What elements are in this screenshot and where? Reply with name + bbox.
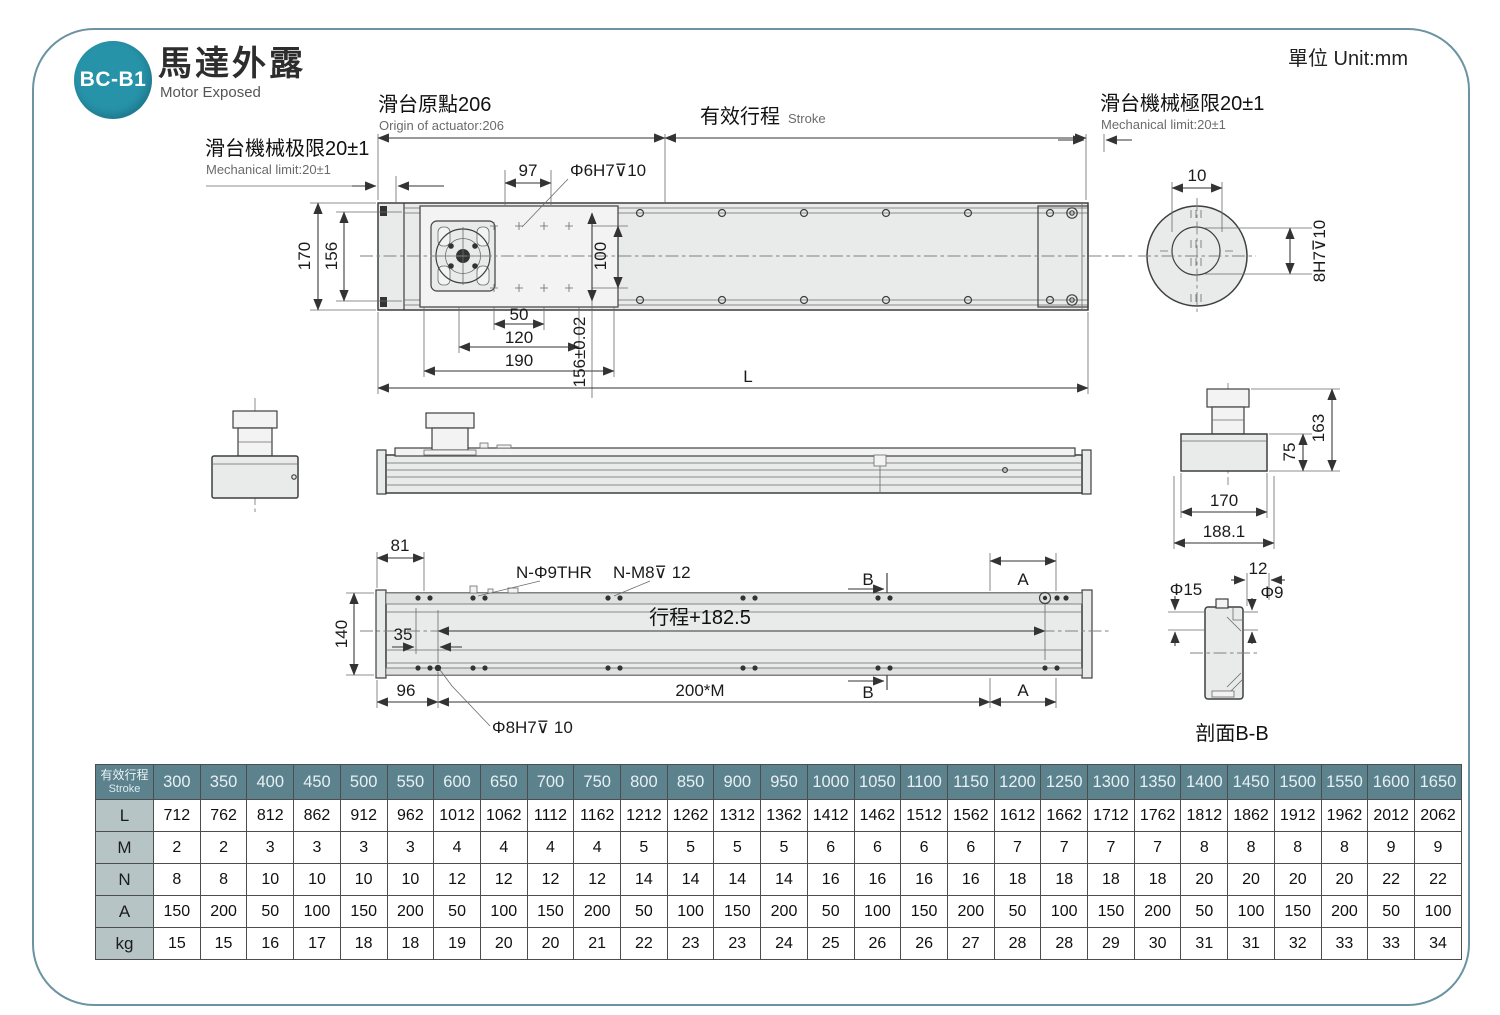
spec-cell: 1562 [947, 800, 994, 832]
spec-cell: 150 [714, 896, 761, 928]
spec-row-M: M2233334444555566667777888899 [96, 832, 1462, 864]
spec-cell: 18 [387, 928, 434, 960]
spec-cell: 762 [200, 800, 247, 832]
spec-cell: 6 [901, 832, 948, 864]
spec-cell: 1162 [574, 800, 621, 832]
spec-cell: 20 [1321, 864, 1368, 896]
spec-cell: 22 [1414, 864, 1461, 896]
spec-cell: 100 [854, 896, 901, 928]
spec-cell: 14 [761, 864, 808, 896]
spec-cell: 15 [154, 928, 201, 960]
spec-cell: 28 [1041, 928, 1088, 960]
spec-cell: 18 [1134, 864, 1181, 896]
stroke-col-header: 1350 [1134, 765, 1181, 800]
spec-cell: 22 [1368, 864, 1415, 896]
spec-cell: 8 [200, 864, 247, 896]
spec-cell: 33 [1368, 928, 1415, 960]
spec-cell: 32 [1274, 928, 1321, 960]
spec-cell: 1262 [667, 800, 714, 832]
stroke-col-header: 1050 [854, 765, 901, 800]
spec-row-kg: kg15151617181819202021222323242526262728… [96, 928, 1462, 960]
spec-cell: 8 [1274, 832, 1321, 864]
spec-cell: 1812 [1181, 800, 1228, 832]
spec-cell: 50 [1181, 896, 1228, 928]
spec-cell: 1412 [807, 800, 854, 832]
spec-cell: 200 [947, 896, 994, 928]
spec-cell: 4 [574, 832, 621, 864]
spec-cell: 1962 [1321, 800, 1368, 832]
spec-cell: 1362 [761, 800, 808, 832]
stroke-col-header: 350 [200, 765, 247, 800]
stroke-col-header: 1150 [947, 765, 994, 800]
spec-cell: 6 [854, 832, 901, 864]
spec-cell: 10 [294, 864, 341, 896]
spec-cell: 1662 [1041, 800, 1088, 832]
spec-cell: 100 [1041, 896, 1088, 928]
spec-cell: 4 [527, 832, 574, 864]
spec-cell: 8 [1181, 832, 1228, 864]
spec-cell: 200 [387, 896, 434, 928]
spec-cell: 25 [807, 928, 854, 960]
spec-cell: 812 [247, 800, 294, 832]
spec-cell: 100 [667, 896, 714, 928]
spec-cell: 1612 [994, 800, 1041, 832]
spec-cell: 7 [1088, 832, 1135, 864]
stroke-col-header: 1450 [1228, 765, 1275, 800]
stroke-col-header: 1200 [994, 765, 1041, 800]
spec-cell: 1512 [901, 800, 948, 832]
spec-cell: 31 [1181, 928, 1228, 960]
stroke-col-header: 1100 [901, 765, 948, 800]
spec-cell: 28 [994, 928, 1041, 960]
spec-cell: 3 [387, 832, 434, 864]
spec-cell: 18 [340, 928, 387, 960]
stroke-col-header: 1400 [1181, 765, 1228, 800]
stroke-header-en: Stroke [96, 783, 153, 795]
spec-cell: 20 [527, 928, 574, 960]
spec-cell: 20 [1181, 864, 1228, 896]
spec-cell: 1112 [527, 800, 574, 832]
datasheet-page: { "page": { "badge": "BC-B1", "title_zh"… [0, 0, 1500, 1015]
spec-cell: 5 [667, 832, 714, 864]
spec-cell: 1862 [1228, 800, 1275, 832]
spec-cell: 34 [1414, 928, 1461, 960]
row-label-kg: kg [96, 928, 154, 960]
spec-cell: 200 [574, 896, 621, 928]
stroke-col-header: 500 [340, 765, 387, 800]
stroke-col-header: 1650 [1414, 765, 1461, 800]
spec-cell: 2012 [1368, 800, 1415, 832]
spec-cell: 26 [854, 928, 901, 960]
spec-cell: 1912 [1274, 800, 1321, 832]
spec-cell: 50 [994, 896, 1041, 928]
spec-cell: 4 [434, 832, 481, 864]
spec-cell: 18 [1088, 864, 1135, 896]
spec-cell: 100 [294, 896, 341, 928]
spec-cell: 19 [434, 928, 481, 960]
spec-cell: 1012 [434, 800, 481, 832]
spec-row-N: N881010101012121212141414141616161618181… [96, 864, 1462, 896]
spec-cell: 29 [1088, 928, 1135, 960]
spec-cell: 10 [387, 864, 434, 896]
spec-cell: 7 [1134, 832, 1181, 864]
spec-cell: 7 [1041, 832, 1088, 864]
spec-cell: 200 [1134, 896, 1181, 928]
spec-cell: 150 [154, 896, 201, 928]
spec-cell: 16 [807, 864, 854, 896]
spec-cell: 2 [154, 832, 201, 864]
spec-cell: 16 [901, 864, 948, 896]
spec-cell: 5 [621, 832, 668, 864]
stroke-col-header: 700 [527, 765, 574, 800]
spec-cell: 27 [947, 928, 994, 960]
stroke-col-header: 1600 [1368, 765, 1415, 800]
spec-cell: 200 [761, 896, 808, 928]
stroke-header-cell: 有效行程Stroke [96, 765, 154, 800]
row-label-M: M [96, 832, 154, 864]
spec-cell: 50 [434, 896, 481, 928]
spec-cell: 4 [480, 832, 527, 864]
spec-cell: 50 [247, 896, 294, 928]
spec-cell: 9 [1414, 832, 1461, 864]
row-label-N: N [96, 864, 154, 896]
spec-cell: 18 [994, 864, 1041, 896]
spec-cell: 21 [574, 928, 621, 960]
stroke-col-header: 600 [434, 765, 481, 800]
spec-cell: 2062 [1414, 800, 1461, 832]
spec-cell: 16 [247, 928, 294, 960]
spec-cell: 23 [667, 928, 714, 960]
spec-cell: 24 [761, 928, 808, 960]
stroke-col-header: 900 [714, 765, 761, 800]
spec-row-L: L712762812862912962101210621112116212121… [96, 800, 1462, 832]
spec-row-A: A150200501001502005010015020050100150200… [96, 896, 1462, 928]
stroke-col-header: 750 [574, 765, 621, 800]
spec-cell: 12 [574, 864, 621, 896]
stroke-col-header: 800 [621, 765, 668, 800]
stroke-col-header: 850 [667, 765, 714, 800]
stroke-col-header: 300 [154, 765, 201, 800]
spec-cell: 1462 [854, 800, 901, 832]
stroke-col-header: 400 [247, 765, 294, 800]
spec-cell: 100 [480, 896, 527, 928]
spec-cell: 8 [1228, 832, 1275, 864]
spec-cell: 16 [854, 864, 901, 896]
spec-cell: 20 [480, 928, 527, 960]
spec-cell: 150 [1088, 896, 1135, 928]
spec-cell: 12 [527, 864, 574, 896]
stroke-header-zh: 有效行程 [96, 769, 153, 782]
spec-cell: 5 [714, 832, 761, 864]
spec-cell: 15 [200, 928, 247, 960]
spec-cell: 712 [154, 800, 201, 832]
spec-cell: 30 [1134, 928, 1181, 960]
spec-cell: 6 [807, 832, 854, 864]
spec-cell: 5 [761, 832, 808, 864]
spec-cell: 17 [294, 928, 341, 960]
spec-cell: 50 [621, 896, 668, 928]
spec-cell: 20 [1274, 864, 1321, 896]
page-subtitle: Motor Exposed [160, 84, 261, 101]
stroke-col-header: 1550 [1321, 765, 1368, 800]
spec-cell: 14 [621, 864, 668, 896]
spec-cell: 23 [714, 928, 761, 960]
spec-cell: 1712 [1088, 800, 1135, 832]
spec-cell: 962 [387, 800, 434, 832]
spec-cell: 150 [1274, 896, 1321, 928]
spec-cell: 8 [1321, 832, 1368, 864]
spec-cell: 10 [340, 864, 387, 896]
spec-cell: 50 [807, 896, 854, 928]
stroke-col-header: 650 [480, 765, 527, 800]
spec-cell: 31 [1228, 928, 1275, 960]
spec-cell: 3 [294, 832, 341, 864]
spec-table: 有效行程Stroke300350400450500550600650700750… [95, 764, 1462, 960]
spec-cell: 10 [247, 864, 294, 896]
stroke-col-header: 1250 [1041, 765, 1088, 800]
stroke-col-header: 1500 [1274, 765, 1321, 800]
spec-cell: 6 [947, 832, 994, 864]
spec-cell: 9 [1368, 832, 1415, 864]
spec-cell: 150 [340, 896, 387, 928]
spec-cell: 50 [1368, 896, 1415, 928]
spec-cell: 14 [667, 864, 714, 896]
spec-cell: 1762 [1134, 800, 1181, 832]
spec-cell: 100 [1228, 896, 1275, 928]
unit-label: 單位 Unit:mm [1288, 42, 1408, 71]
spec-cell: 1212 [621, 800, 668, 832]
page-title: 馬達外露 [158, 36, 306, 85]
spec-cell: 26 [901, 928, 948, 960]
stroke-col-header: 950 [761, 765, 808, 800]
spec-cell: 7 [994, 832, 1041, 864]
spec-cell: 862 [294, 800, 341, 832]
spec-cell: 3 [340, 832, 387, 864]
spec-cell: 14 [714, 864, 761, 896]
row-label-A: A [96, 896, 154, 928]
stroke-col-header: 450 [294, 765, 341, 800]
spec-cell: 12 [434, 864, 481, 896]
spec-cell: 33 [1321, 928, 1368, 960]
spec-cell: 1312 [714, 800, 761, 832]
spec-cell: 912 [340, 800, 387, 832]
spec-cell: 1062 [480, 800, 527, 832]
spec-cell: 200 [1321, 896, 1368, 928]
spec-cell: 12 [480, 864, 527, 896]
spec-cell: 150 [901, 896, 948, 928]
stroke-col-header: 1000 [807, 765, 854, 800]
spec-cell: 20 [1228, 864, 1275, 896]
spec-cell: 22 [621, 928, 668, 960]
spec-table-container: 有效行程Stroke300350400450500550600650700750… [95, 764, 1462, 960]
stroke-col-header: 1300 [1088, 765, 1135, 800]
row-label-L: L [96, 800, 154, 832]
spec-cell: 200 [200, 896, 247, 928]
spec-cell: 150 [527, 896, 574, 928]
spec-cell: 3 [247, 832, 294, 864]
spec-cell: 18 [1041, 864, 1088, 896]
model-badge: BC-B1 [74, 41, 152, 119]
spec-cell: 8 [154, 864, 201, 896]
spec-cell: 2 [200, 832, 247, 864]
spec-cell: 16 [947, 864, 994, 896]
stroke-col-header: 550 [387, 765, 434, 800]
spec-cell: 100 [1414, 896, 1461, 928]
